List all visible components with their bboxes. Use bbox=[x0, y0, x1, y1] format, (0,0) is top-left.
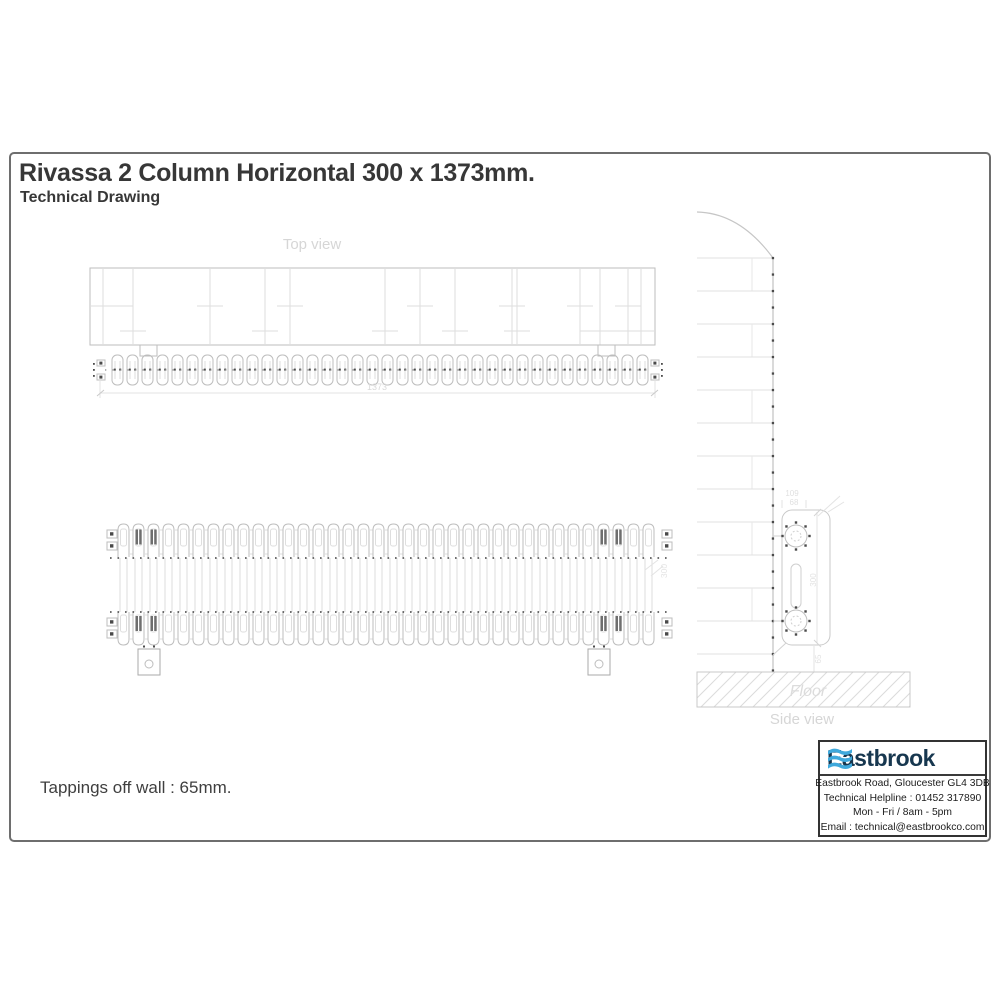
side-view-geometry bbox=[662, 212, 944, 707]
side-height-dim: 300 bbox=[809, 573, 818, 587]
side-view-drawing: 109 68 300 65 Floor Side view bbox=[690, 200, 920, 735]
brand-hours: Mon - Fri / 8am - 5pm bbox=[820, 806, 985, 821]
top-view-length-dim: 1373 bbox=[367, 382, 387, 392]
top-view-label: Top view bbox=[283, 236, 342, 253]
eastbrook-waves-icon bbox=[827, 748, 853, 770]
front-view-geometry bbox=[107, 524, 672, 675]
tappings-note: Tappings off wall : 65mm. bbox=[40, 778, 232, 798]
top-view-drawing: Top view 1373 bbox=[85, 232, 670, 407]
front-view-height-dim: 300 bbox=[659, 564, 669, 578]
brand-box: Eastbrook Eastbrook Road, Gloucester GL4… bbox=[818, 740, 987, 837]
top-view-geometry bbox=[90, 268, 663, 398]
side-wall-tapping-dim: 68 bbox=[790, 498, 799, 507]
side-view-label: Side view bbox=[770, 711, 834, 728]
front-view-drawing: 300 bbox=[100, 508, 680, 678]
brand-helpline: Technical Helpline : 01452 317890 bbox=[820, 791, 985, 806]
brand-email: Email : technical@eastbrookco.com bbox=[820, 820, 985, 835]
floor-label: Floor bbox=[790, 683, 827, 700]
brand-address: Eastbrook Road, Gloucester GL4 3DB bbox=[820, 776, 985, 791]
side-floor-gap-dim: 65 bbox=[814, 654, 823, 663]
side-depth-dim: 109 bbox=[785, 489, 799, 498]
brand-logo-row: Eastbrook bbox=[820, 742, 985, 776]
page-subtitle: Technical Drawing bbox=[20, 189, 160, 207]
page-title: Rivassa 2 Column Horizontal 300 x 1373mm… bbox=[19, 159, 535, 188]
